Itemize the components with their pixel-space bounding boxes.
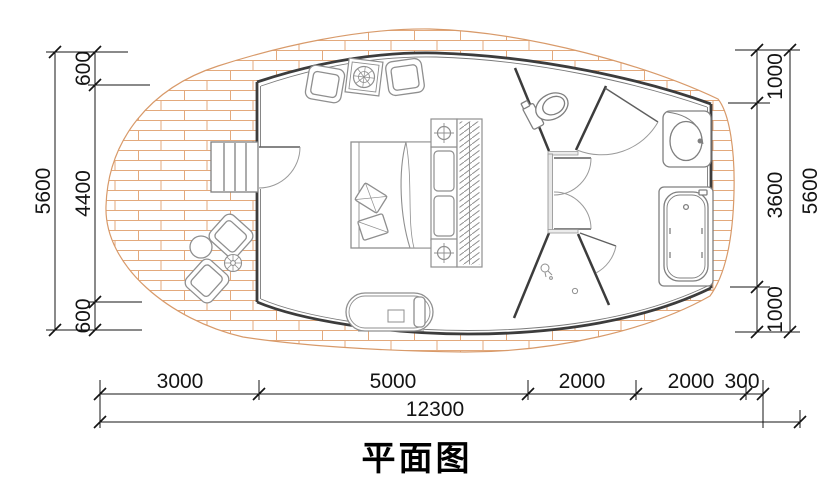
dim-label-bottom-total: 12300 <box>406 398 464 421</box>
dim-label-left-top: 600 <box>72 51 95 86</box>
headboard-bench <box>431 147 457 240</box>
dimension-right: 1000 3600 1000 5600 <box>728 44 822 338</box>
dim-label-right-bottom: 1000 <box>764 286 787 333</box>
dim-label-left-mid: 4400 <box>72 170 95 217</box>
drawing-title: 平面图 <box>362 440 473 478</box>
floor-plan-drawing: 600 4400 600 5600 1000 3600 1000 5600 <box>0 0 837 496</box>
dim-label-bottom-1: 3000 <box>157 370 204 393</box>
shower-threshold <box>548 230 578 234</box>
outdoor-round-table <box>190 236 212 258</box>
dim-label-bottom-4: 2000 <box>668 370 715 393</box>
wardrobe <box>457 119 482 267</box>
dim-label-left-total: 5600 <box>32 168 55 215</box>
nightstand-lamp <box>431 239 457 267</box>
bathtub <box>659 187 713 286</box>
armchair <box>304 64 345 104</box>
floor-plan-canvas: 600 4400 600 5600 1000 3600 1000 5600 <box>0 0 837 496</box>
side-table-plant <box>345 58 383 96</box>
dim-label-left-bottom: 600 <box>72 298 95 333</box>
chaise-longue <box>346 293 433 331</box>
dim-label-bottom-5: 300 <box>724 370 759 393</box>
dim-label-bottom-2: 5000 <box>370 370 417 393</box>
bed <box>351 142 432 248</box>
dim-label-right-top: 1000 <box>764 53 787 100</box>
dim-label-bottom-3: 2000 <box>559 370 606 393</box>
washbasin <box>663 111 711 167</box>
hall-partition <box>548 154 553 230</box>
entrance-steps <box>211 142 258 192</box>
dim-label-right-mid: 3600 <box>764 172 787 219</box>
armchair <box>385 58 425 97</box>
parasol-base-icon <box>225 255 242 272</box>
dimension-bottom: 3000 5000 2000 2000 300 12300 <box>94 370 806 428</box>
dim-label-right-total: 5600 <box>799 168 822 215</box>
nightstand-lamp <box>431 119 457 147</box>
